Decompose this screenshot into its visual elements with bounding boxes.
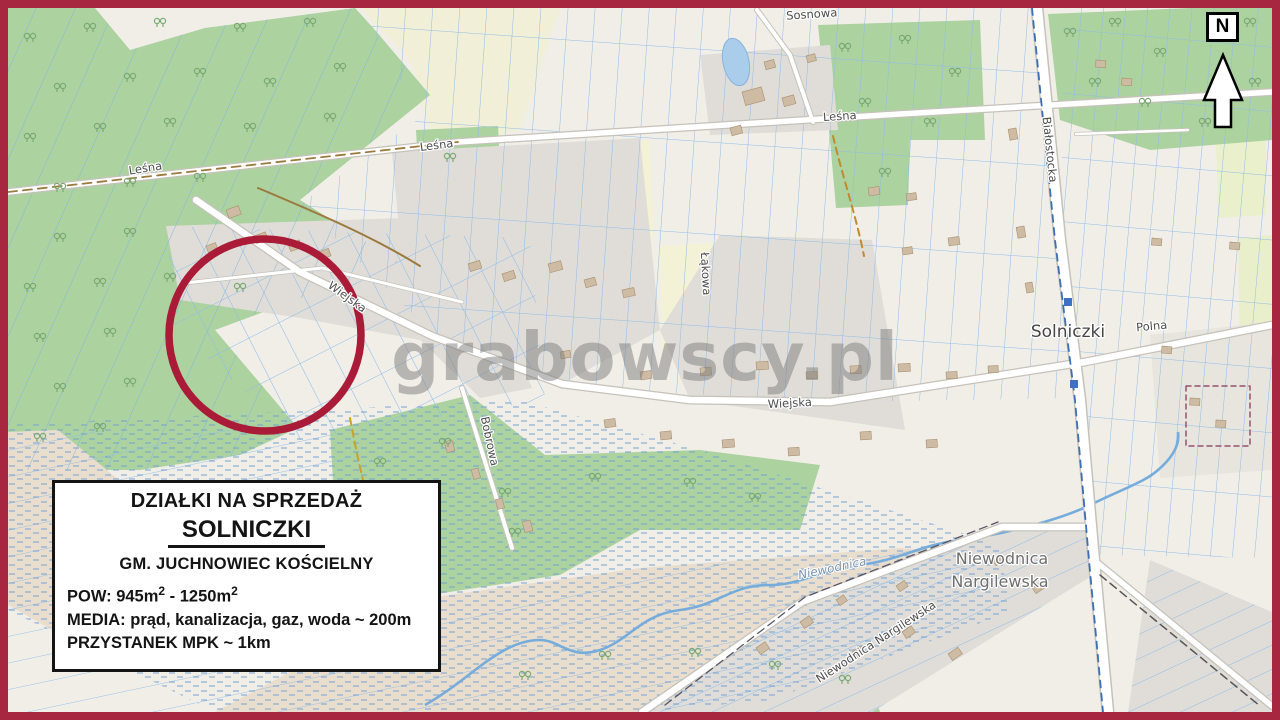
area-prefix: POW: 945m xyxy=(67,588,158,606)
street-label-lesna-east: Leśna xyxy=(822,108,857,124)
area-sup2: 2 xyxy=(231,584,238,598)
listing-info-box: DZIAŁKI NA SPRZEDAŻ SOLNICZKI GM. JUCHNO… xyxy=(52,480,441,672)
map-screenshot: Sosnowa Leśna Leśna Leśna Białostocka Łą… xyxy=(0,0,1280,720)
street-label-polna: Polna xyxy=(1136,318,1168,335)
watermark: grabowscy.pl xyxy=(391,318,899,396)
listing-locality-text: SOLNICZKI xyxy=(168,516,325,548)
listing-commune: GM. JUCHNOWIEC KOŚCIELNY xyxy=(67,555,426,574)
street-label-lakowa: Łąkowa xyxy=(698,251,714,296)
listing-title: DZIAŁKI NA SPRZEDAŻ xyxy=(67,490,426,513)
street-label-wiejska-main: Wiejska xyxy=(767,395,812,411)
listing-details: POW: 945m2 - 1250m2 MEDIA: prąd, kanaliz… xyxy=(67,583,426,656)
compass-n-box: N xyxy=(1206,12,1239,42)
listing-transit-line: PRZYSTANEK MPK ~ 1km xyxy=(67,632,426,655)
place-label-niewodnica-line1: Niewodnica xyxy=(956,549,1048,568)
place-label-solniczki: Solniczki xyxy=(1031,322,1105,342)
listing-media-line: MEDIA: prąd, kanalizacja, gaz, woda ~ 20… xyxy=(67,609,426,632)
area-mid: - 1250m xyxy=(165,588,231,606)
listing-area-line: POW: 945m2 - 1250m2 xyxy=(67,583,426,609)
place-label-niewodnica-line2: Nargilewska xyxy=(951,572,1048,591)
listing-locality: SOLNICZKI xyxy=(67,516,426,548)
